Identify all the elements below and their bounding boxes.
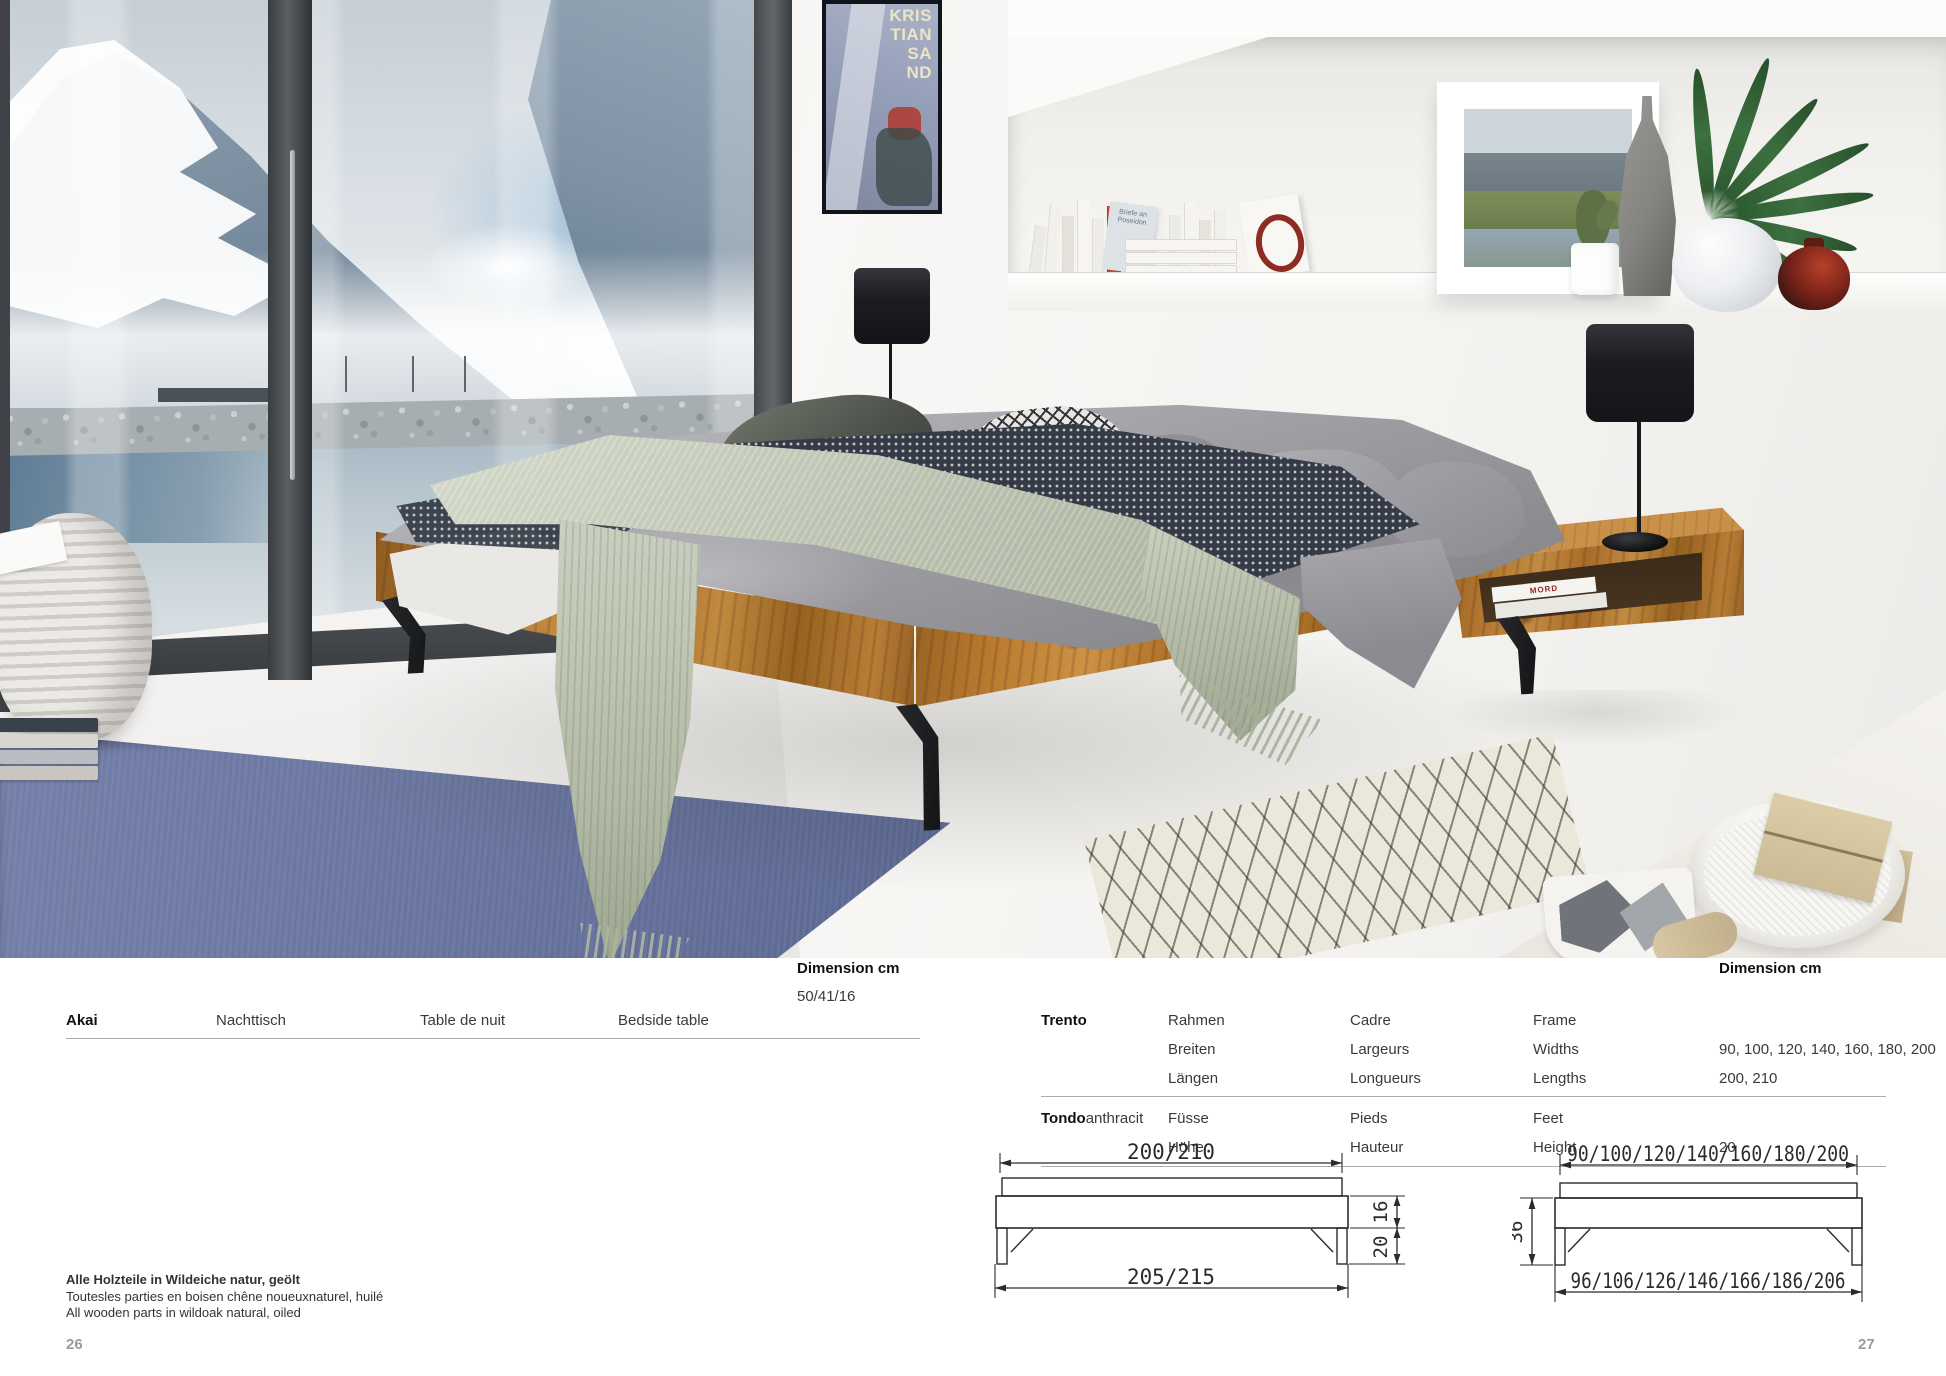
- trento-table-rule-1: [1041, 1096, 1886, 1097]
- tondo-name: Tondo: [1041, 1110, 1086, 1127]
- book-spine: [1077, 200, 1089, 272]
- akai-label-de: Nachttisch: [216, 1012, 286, 1029]
- trento-fr-widths: Largeurs: [1350, 1041, 1409, 1058]
- trento-dimension-label: Dimension cm: [1719, 960, 1822, 977]
- trento-lengths-values: 200, 210: [1719, 1070, 1777, 1087]
- catalog-spread: KRIS TIAN SA ND Briefe an P: [0, 0, 1946, 1376]
- book-ring-cover: [1238, 194, 1309, 280]
- magazine-stack: [0, 716, 98, 786]
- page-number-left: 26: [66, 1336, 83, 1353]
- poster-title: KRIS TIAN SA ND: [889, 6, 932, 82]
- book-stack: [1125, 238, 1237, 274]
- magazine: [0, 750, 98, 764]
- materials-note-en: All wooden parts in wildoak natural, oil…: [66, 1305, 301, 1321]
- shelf-shadow: [1445, 690, 1745, 746]
- trento-en-lengths: Lengths: [1533, 1070, 1586, 1087]
- tondo-variant: anthracit: [1086, 1110, 1144, 1127]
- poster-artwork: KRIS TIAN SA ND: [826, 4, 938, 210]
- bedroom-photo: KRIS TIAN SA ND Briefe an P: [0, 0, 1946, 958]
- table-lamp-stem: [1637, 422, 1641, 540]
- akai-table-rule: [66, 1038, 920, 1039]
- trento-de-lengths: Längen: [1168, 1070, 1218, 1087]
- page-number-right: 27: [1858, 1336, 1875, 1353]
- trento-en-widths: Widths: [1533, 1041, 1579, 1058]
- poster-dark-shape: [876, 128, 932, 206]
- front-view-top-width: 90/100/120/140/160/180/200: [1567, 1142, 1849, 1166]
- table-lamp-shade: [1586, 324, 1694, 422]
- trento-widths-values: 90, 100, 120, 140, 160, 180, 200: [1719, 1041, 1936, 1058]
- front-view-total-height: 36: [1512, 1221, 1527, 1244]
- drawing-side-view: 200/210 205/215 16 20: [985, 1140, 1415, 1315]
- niche-soffit: [1008, 0, 1946, 38]
- akai-label-fr: Table de nuit: [420, 1012, 505, 1029]
- akai-label-en: Bedside table: [618, 1012, 709, 1029]
- akai-dimension-label: Dimension cm: [797, 960, 900, 977]
- akai-product-name: Akai: [66, 1012, 98, 1029]
- tondo-de-feet: Füsse: [1168, 1110, 1209, 1127]
- floor-lamp-shade: [854, 268, 930, 344]
- drawing-front-view: 90/100/120/140/160/180/200 36 96/106/126…: [1512, 1140, 1932, 1315]
- akai-dimension-value: 50/41/16: [797, 988, 855, 1005]
- trento-product-name: Trento: [1041, 1012, 1087, 1029]
- trento-en-frame: Frame: [1533, 1012, 1576, 1029]
- tondo-fr-feet: Pieds: [1350, 1110, 1388, 1127]
- trento-de-widths: Breiten: [1168, 1041, 1216, 1058]
- table-lamp-base: [1602, 532, 1668, 552]
- materials-note-fr: Toutesles parties en boisen chêne noueux…: [66, 1289, 383, 1305]
- trento-de-frame: Rahmen: [1168, 1012, 1225, 1029]
- magazine: [0, 766, 98, 780]
- materials-note-de: Alle Holzteile in Wildeiche natur, geölt: [66, 1272, 300, 1288]
- book-horizontal: [1125, 239, 1237, 251]
- magazine: [0, 718, 98, 732]
- marble-vase: [1672, 218, 1782, 312]
- red-vase: [1778, 246, 1850, 310]
- ring-graphic: [1252, 211, 1308, 276]
- trento-fr-lengths: Longueurs: [1350, 1070, 1421, 1087]
- side-view-feet-height: 20: [1370, 1236, 1392, 1259]
- envelope-string: [1764, 830, 1883, 862]
- book-spine: [1044, 204, 1062, 273]
- side-view-bottom-width: 205/215: [1127, 1265, 1215, 1289]
- book-spine: [1062, 216, 1074, 272]
- trento-fr-frame: Cadre: [1350, 1012, 1391, 1029]
- side-view-top-width: 200/210: [1127, 1140, 1215, 1164]
- magazine: [0, 734, 98, 748]
- tondo-product-name: Tondoanthracit: [1041, 1110, 1143, 1127]
- side-view-frame-height: 16: [1370, 1201, 1392, 1224]
- tondo-en-feet: Feet: [1533, 1110, 1563, 1127]
- front-view-bottom-width: 96/106/126/146/166/186/206: [1571, 1269, 1846, 1293]
- book-horizontal: [1125, 252, 1237, 264]
- wall-poster: KRIS TIAN SA ND: [822, 0, 942, 214]
